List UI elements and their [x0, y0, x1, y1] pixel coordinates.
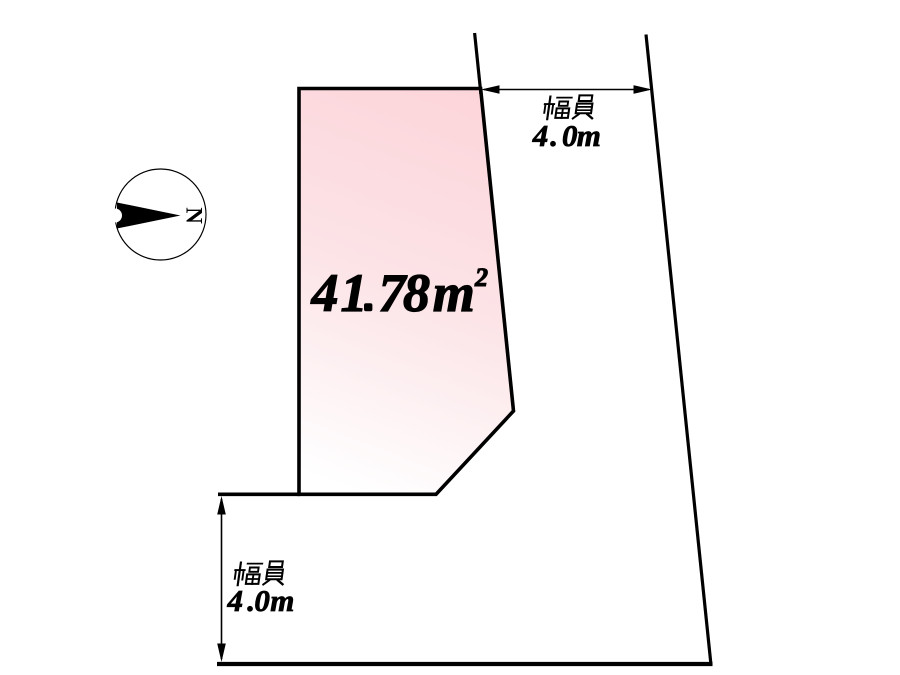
svg-text:4.0m: 4.0m: [532, 118, 601, 153]
svg-text:4.0m: 4.0m: [227, 583, 295, 618]
svg-text:2: 2: [474, 263, 488, 292]
svg-text:N: N: [182, 207, 207, 224]
svg-text:4178m: 4178m: [311, 263, 475, 323]
